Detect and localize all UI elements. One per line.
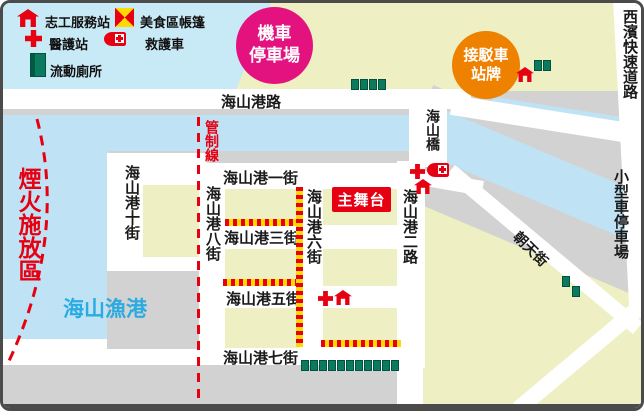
toilet-icon xyxy=(572,286,580,297)
toilet-icon xyxy=(382,360,390,371)
toilet-icon xyxy=(543,60,551,71)
barrier-line xyxy=(225,219,301,226)
toilet-icon xyxy=(562,276,570,287)
house-icon xyxy=(334,290,352,305)
cross-icon xyxy=(410,164,425,179)
toilet-icon xyxy=(337,360,345,371)
toilet-icon xyxy=(351,79,359,90)
toilet-icon xyxy=(391,360,399,371)
toilet-icon xyxy=(346,360,354,371)
toilet-icon xyxy=(319,360,327,371)
house-icon xyxy=(516,67,534,82)
toilet-icon xyxy=(369,79,377,90)
barrier-line xyxy=(321,340,401,347)
event-map: 海山港路 管制線 海山港一街 海山港三街 海山港五街 海山港七街 海山港十街 海… xyxy=(0,0,644,411)
toilet-icon xyxy=(373,360,381,371)
toilet-icon xyxy=(328,360,336,371)
barrier-line xyxy=(223,279,299,286)
barrier-line xyxy=(296,187,303,347)
house-icon xyxy=(414,179,432,194)
toilet-icon xyxy=(301,360,309,371)
toilet-icon xyxy=(364,360,372,371)
map-border-bottom xyxy=(3,404,644,411)
toilet-icon xyxy=(355,360,363,371)
ambulance-icon xyxy=(427,163,449,177)
toilet-icon xyxy=(360,79,368,90)
toilet-icon xyxy=(378,79,386,90)
toilet-icon xyxy=(310,360,318,371)
cross-icon xyxy=(318,291,333,306)
toilet-icon xyxy=(534,60,542,71)
